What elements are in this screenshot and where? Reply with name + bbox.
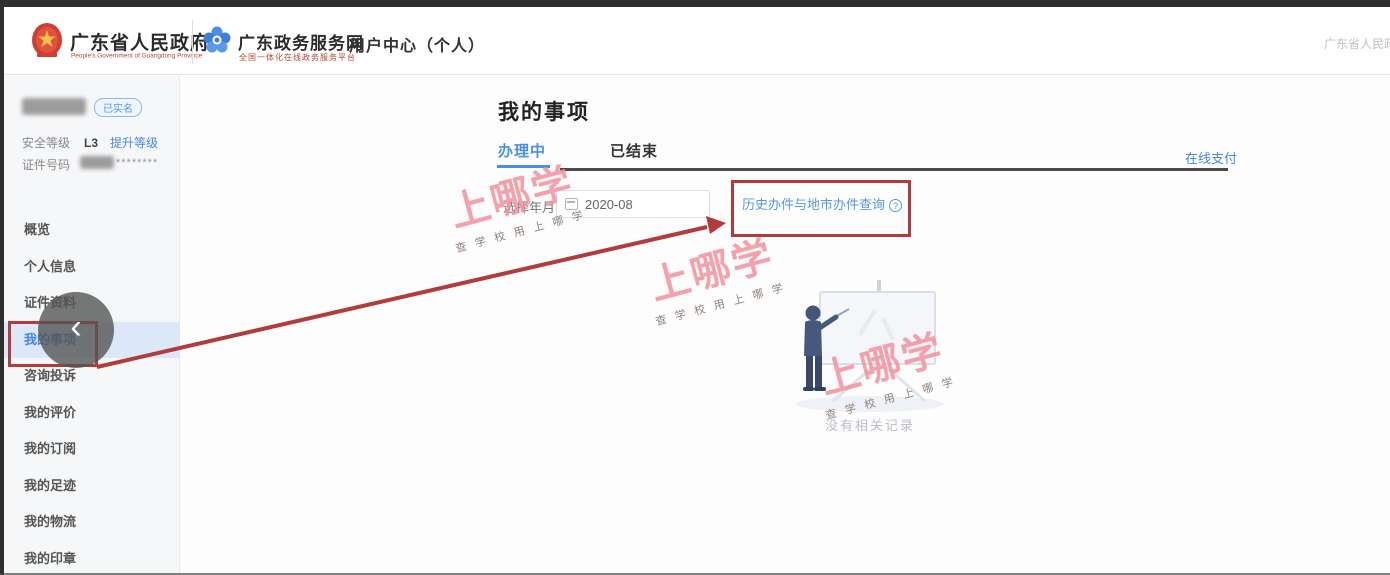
sidebar-item-my-seals[interactable]: 我的印章 <box>4 541 180 575</box>
sidebar-item-personal-info[interactable]: 个人信息 <box>4 249 180 286</box>
gov-logo-subtitle: People's Government of Guangdong Provinc… <box>71 53 202 59</box>
page: 广东省人民政府 People's Government of Guangdong… <box>0 0 1390 575</box>
tab-bottom-border <box>560 168 1228 171</box>
header-right-text: 广东省人民政 <box>1324 35 1390 52</box>
id-masked-value: ******** <box>116 157 158 169</box>
help-icon[interactable]: ? <box>889 199 902 212</box>
service-flower-icon <box>202 24 232 61</box>
screenshot-left-edge <box>0 0 4 575</box>
security-level: L3 <box>84 136 98 150</box>
service-logo-subtitle: 全国一体化在线政务服务平台 <box>239 52 356 63</box>
empty-state-illustration <box>775 280 965 417</box>
header: 广东省人民政府 People's Government of Guangdong… <box>4 7 1390 75</box>
header-divider <box>192 20 193 64</box>
sidebar-item-my-logistics[interactable]: 我的物流 <box>4 504 180 541</box>
realname-badge: 已实名 <box>94 98 142 117</box>
annotation-arrow <box>0 0 1390 575</box>
service-logo-title: 广东政务服务网 <box>238 29 364 54</box>
blurred-id-value <box>80 156 114 169</box>
user-center-label: 用户中心（个人） <box>349 32 485 56</box>
screenshot-top-edge <box>0 0 1390 7</box>
sidebar-item-overview[interactable]: 概览 <box>4 212 180 249</box>
active-tab-underline <box>497 165 550 168</box>
date-value: 2020-08 <box>585 197 633 212</box>
sidebar-collapse-button[interactable]: ‹ <box>38 292 114 368</box>
gov-logo-title: 广东省人民政府 <box>70 28 210 55</box>
sidebar-menu: 概览 个人信息 证件资料 我的事项 咨询投诉 我的评价 我的订阅 我的足迹 我的… <box>4 212 180 575</box>
tab-in-progress[interactable]: 办理中 <box>498 140 546 161</box>
page-title: 我的事项 <box>498 96 590 126</box>
history-records-link[interactable]: 历史办件与地市办件查询? <box>742 194 902 213</box>
blurred-username <box>22 98 86 115</box>
sidebar-item-my-subscriptions[interactable]: 我的订阅 <box>4 431 180 468</box>
sidebar-item-my-evaluations[interactable]: 我的评价 <box>4 395 180 432</box>
chevron-left-icon: ‹ <box>70 308 81 346</box>
date-filter-label: 选择年月: <box>503 197 559 216</box>
security-label: 安全等级 <box>22 136 70 150</box>
empty-state-text: 没有相关记录 <box>775 415 965 434</box>
history-records-link-text: 历史办件与地市办件查询 <box>742 197 885 212</box>
national-emblem-icon <box>30 22 64 67</box>
id-number-label: 证件号码 <box>22 156 70 173</box>
upgrade-level-link[interactable]: 提升等级 <box>110 136 158 150</box>
online-payment-link[interactable]: 在线支付 <box>1185 148 1237 167</box>
security-row: 安全等级L3提升等级 <box>22 134 158 151</box>
sidebar-item-my-footprints[interactable]: 我的足迹 <box>4 468 180 505</box>
tab-finished[interactable]: 已结束 <box>610 140 658 161</box>
calendar-icon <box>565 198 578 210</box>
date-input[interactable]: 2020-08 <box>556 190 710 218</box>
